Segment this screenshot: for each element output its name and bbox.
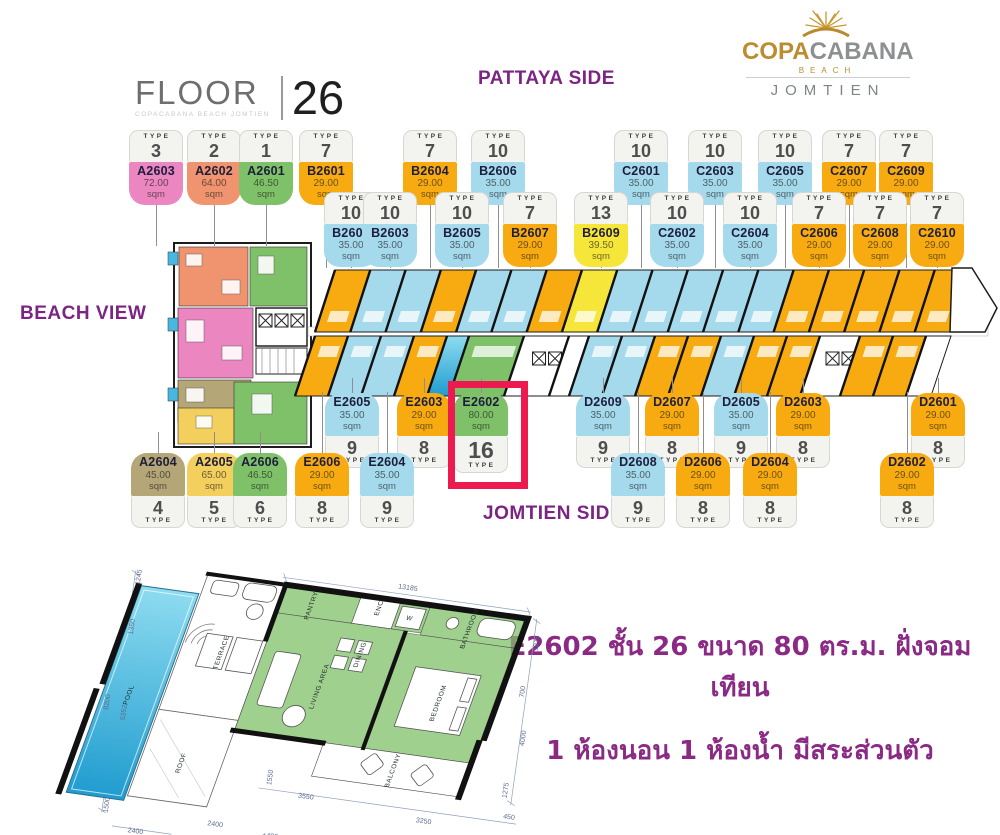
building-end-cap [950,268,997,332]
unit-info-part: D260535.00sqm [714,393,768,436]
unit-info-part: A260264.00sqm [187,162,241,205]
type-part: 6TYPE [233,496,287,528]
unit-info-part: D260729.00sqm [645,393,699,436]
leader-line-E2605 [352,378,353,393]
mini-pool-icon [168,318,178,331]
elevator-core-icon [256,308,307,374]
type-part: TYPE10 [363,192,417,224]
leader-line-D2608 [638,392,639,453]
leader-line-E2606 [322,392,323,453]
unit-info-part: E260535.00sqm [325,393,379,436]
unit-info-part: C261029.00sqm [910,224,964,267]
leader-line-D2606 [703,392,704,453]
type-part: TYPE10 [723,192,777,224]
type-part: TYPE7 [822,130,876,162]
leader-line-A2606 [260,432,261,453]
unit-label-B2607: TYPE7B260729.00sqm [503,192,557,267]
dim-label: 1975 [532,635,541,652]
type-part: TYPE10 [471,130,525,162]
dim-label: 1550 [266,769,275,786]
type-part: TYPE10 [688,130,742,162]
leader-line-D2607 [672,378,673,393]
unit-label-D2608: D260835.00sqm9TYPE [611,453,665,528]
unit-info-part: D260129.00sqm [911,393,965,436]
dim-label: 4000 [519,730,528,747]
dim-label: 3250 [415,817,432,826]
leader-line-E2603 [424,378,425,393]
type-part: 8TYPE [676,496,730,528]
leader-line-D2605 [741,378,742,393]
leader-line-E2604 [387,392,388,453]
type-part: TYPE10 [435,192,489,224]
unit-info-part: D260935.00sqm [576,393,630,436]
unit-label-A2603: TYPE3A260372.00sqm [129,130,183,205]
type-part: TYPE3 [129,130,183,162]
pattaya-side-units [315,270,970,332]
unit-label-A2601: TYPE1A260146.50sqm [239,130,293,205]
type-part: TYPE7 [910,192,964,224]
type-part: 8TYPE [295,496,349,528]
unit-info-part: E260629.00sqm [295,453,349,496]
type-part: TYPE7 [299,130,353,162]
e2602-unit-plan: POOLTERRACEROOFPANTRYLIVING AREADININGBE… [0,520,575,835]
unit-info-part: B260535.00sqm [435,224,489,267]
type-part: TYPE7 [853,192,907,224]
unit-info-part: D260835.00sqm [611,453,665,496]
type-part: TYPE10 [650,192,704,224]
e2602-highlight-box [448,381,528,489]
unit-info-part: E260329.00sqm [397,393,451,436]
type-part: TYPE7 [792,192,846,224]
unit-info-part: B260729.00sqm [503,224,557,267]
leader-line-A2604 [158,432,159,453]
unit-label-B2605: TYPE10B260535.00sqm [435,192,489,267]
unit-label-E2604: E260435.00sqm9TYPE [360,453,414,528]
type-part: TYPE10 [614,130,668,162]
dim-label: 2400 [207,820,224,829]
unit-label-C2608: TYPE7C260829.00sqm [853,192,907,267]
a-block [168,243,311,447]
dim-label: 450 [503,813,516,822]
leader-line-D2609 [603,378,604,393]
type-part: TYPE1 [239,130,293,162]
unit-label-C2604: TYPE10C260435.00sqm [723,192,777,267]
unit-label-A2602: TYPE2A260264.00sqm [187,130,241,205]
unit-info-part: A260146.50sqm [239,162,293,205]
unit-info-part: D260329.00sqm [776,393,830,436]
type-part: 4TYPE [131,496,185,528]
leader-line-A2605 [214,432,215,453]
type-part: TYPE13 [574,192,628,224]
leader-line-D2603 [803,378,804,393]
unit-info-part: B260939.50sqm [574,224,628,267]
unit-info-part: E260435.00sqm [360,453,414,496]
mini-pool-icon [168,252,178,265]
leader-line-D2602 [907,392,908,453]
type-part: 8TYPE [880,496,934,528]
unit-info-part: A260646.50sqm [233,453,287,496]
unit-info-part: D260629.00sqm [676,453,730,496]
type-part: TYPE7 [879,130,933,162]
type-part: 9TYPE [360,496,414,528]
dim-label: 3550 [298,793,315,802]
unit-label-D2604: D260429.00sqm8TYPE [743,453,797,528]
unit-info-part: D260429.00sqm [743,453,797,496]
type-part: TYPE7 [503,192,557,224]
jomtien-side-units [295,336,951,396]
unit-info-part: D260229.00sqm [880,453,934,496]
unit-label-C2606: TYPE7C260629.00sqm [792,192,846,267]
unit-label-C2602: TYPE10C260235.00sqm [650,192,704,267]
unit-info-part: C260829.00sqm [853,224,907,267]
unit-label-B2609: TYPE13B260939.50sqm [574,192,628,267]
type-part: 8TYPE [743,496,797,528]
unit-info-part: A260445.00sqm [131,453,185,496]
unit-label-E2606: E260629.00sqm8TYPE [295,453,349,528]
leader-line-D2604 [770,392,771,453]
type-part: 9TYPE [611,496,665,528]
unit-label-A2606: A260646.50sqm6TYPE [233,453,287,528]
dim-label: 1275 [502,782,511,799]
unit-label-D2606: D260629.00sqm8TYPE [676,453,730,528]
unit-info-part: C260435.00sqm [723,224,777,267]
leader-line-D2601 [938,378,939,393]
unit-info-part: A260372.00sqm [129,162,183,205]
dim-label: 13185 [398,583,418,593]
unit-info-part: C260629.00sqm [792,224,846,267]
type-part: TYPE2 [187,130,241,162]
unit-label-A2604: A260445.00sqm4TYPE [131,453,185,528]
unit-info-part: C260235.00sqm [650,224,704,267]
floorplan-infographic: FLOOR COPACABANA BEACH JOMTIEN 26 COPACA… [0,0,1000,835]
mini-pool-icon [168,388,178,401]
dim-label: 1500 [103,797,112,814]
unit-label-C2610: TYPE7C261029.00sqm [910,192,964,267]
unit-info-part: B260335.00sqm [363,224,417,267]
dim-label: 2400 [127,827,144,835]
dim-label: 1245 [135,569,144,586]
type-part: TYPE7 [403,130,457,162]
unit-label-B2603: TYPE10B260335.00sqm [363,192,417,267]
type-part: TYPE10 [758,130,812,162]
unit-label-D2602: D260229.00sqm8TYPE [880,453,934,528]
